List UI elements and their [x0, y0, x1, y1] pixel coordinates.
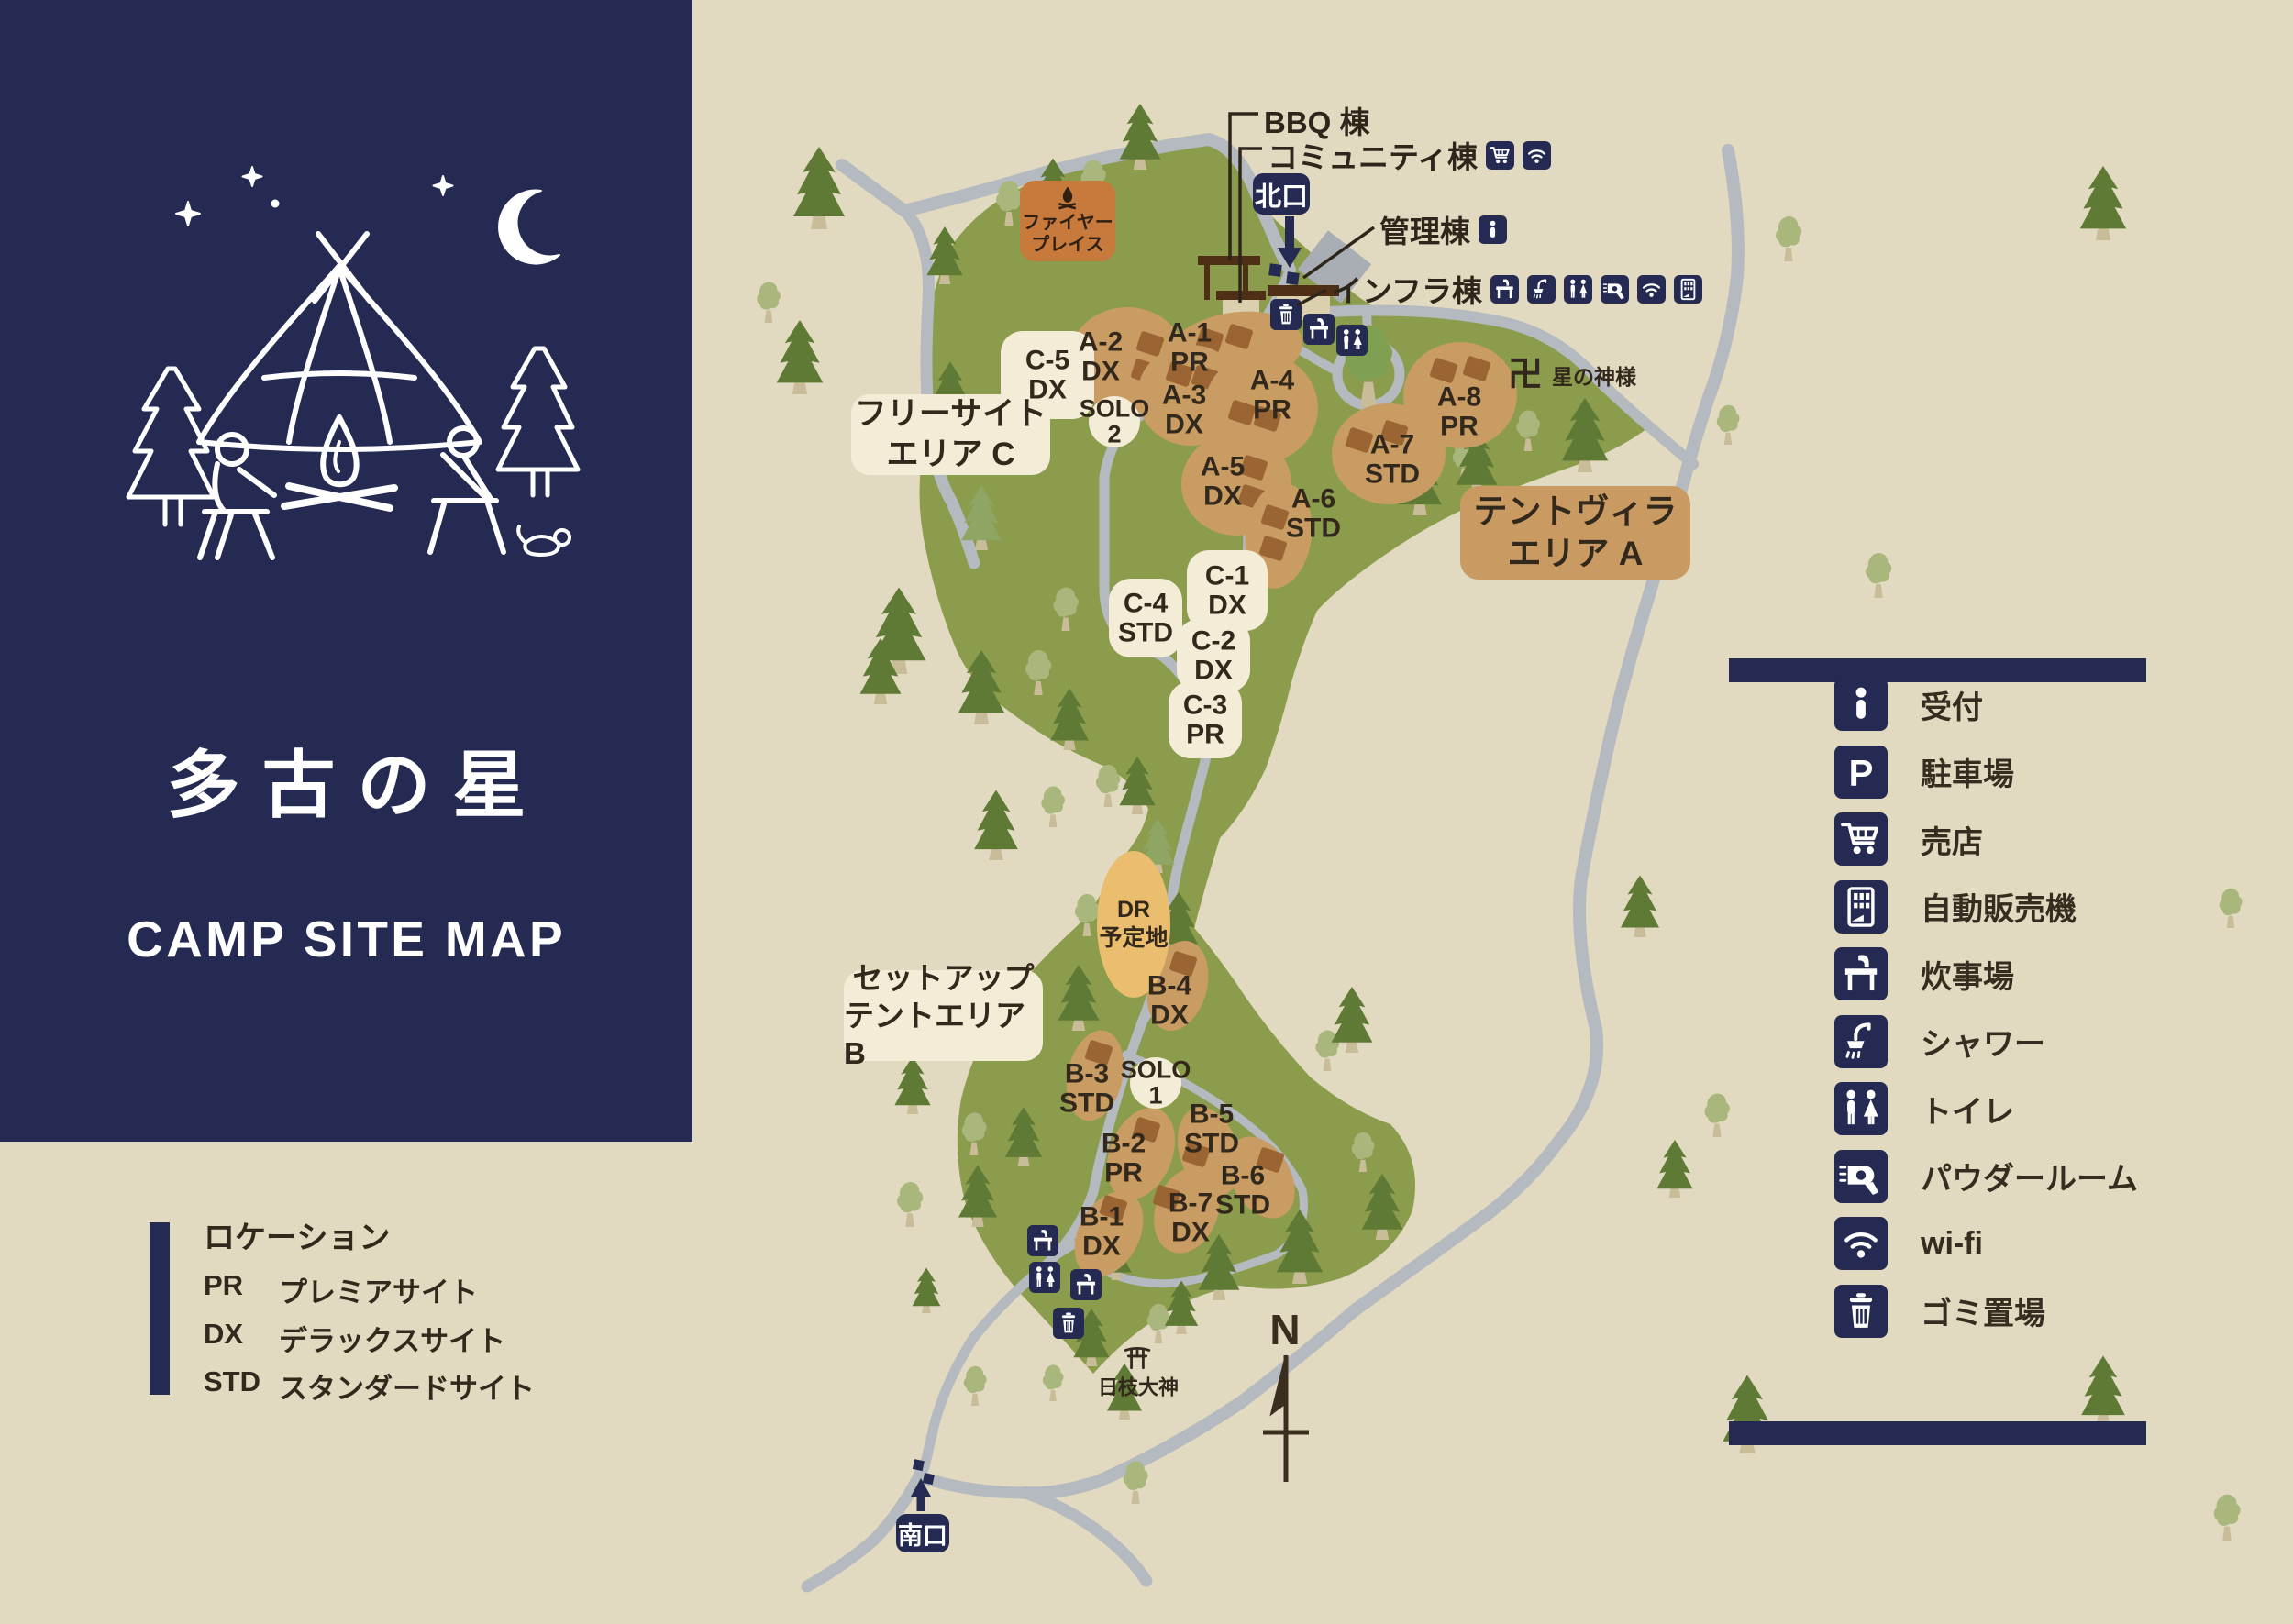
fireplace-area: ファイヤー プレイス: [1020, 181, 1115, 261]
wifi-icon: [1637, 275, 1666, 304]
sketch-campfire-logs: [284, 486, 394, 508]
site-label-A-4: A-4PR: [1250, 367, 1294, 425]
site-label-C-2: C-2DX: [1191, 627, 1235, 685]
deciduous-tree-icon: [1041, 786, 1065, 827]
sink-icon: [1303, 314, 1335, 345]
fireplace-line1: ファイヤー: [1022, 212, 1113, 234]
torii-icon: [1125, 1348, 1149, 1367]
sketch-tree-right: [498, 348, 578, 495]
deciduous-tree-icon: [1043, 1364, 1064, 1401]
moon-icon: [499, 191, 559, 264]
camp-site-map-poster: P: [0, 0, 2293, 1624]
deciduous-tree-icon: [1776, 216, 1801, 261]
facility-label: 自動販売機: [1921, 884, 2077, 929]
vending-icon: [1834, 880, 1888, 934]
deciduous-tree-icon: [1705, 1093, 1730, 1137]
sink-icon: [1027, 1225, 1058, 1256]
site-label-A-8: A-8PR: [1437, 383, 1481, 441]
parking-icon: [1834, 746, 1888, 799]
campfire-illustration: [78, 138, 610, 669]
site-label-B-4: B-4DX: [1147, 972, 1191, 1030]
site-label-B-7: B-7DX: [1169, 1189, 1213, 1247]
facility-row-vending: 自動販売機: [1834, 880, 2077, 934]
shop-icon: [1834, 812, 1888, 866]
site-label-A-2: A-2DX: [1079, 328, 1123, 386]
facility-label: 炊事場: [1921, 952, 2014, 997]
area-label-free-site-c: フリーサイト エリア C: [851, 394, 1050, 475]
dr-line2: 予定地: [1099, 924, 1168, 953]
toilet-icon: [1029, 1262, 1060, 1293]
deciduous-tree-icon: [1096, 765, 1120, 807]
site-label-B-5: B-5STD: [1184, 1100, 1239, 1158]
sink-icon: [1490, 275, 1519, 304]
sink-icon: [1070, 1269, 1102, 1300]
facility-label: シャワー: [1921, 1019, 2045, 1064]
conifer-tree-icon: [2080, 166, 2126, 240]
toilet-icon: [1834, 1082, 1888, 1135]
south-entrance-badge: 南口: [896, 1514, 949, 1552]
facility-label: 受付: [1921, 682, 1983, 727]
campfire-icon: [1054, 184, 1081, 212]
facility-row-sink: 炊事場: [1834, 947, 2014, 1000]
area-label-tent-villa-a: テントヴィラ エリア A: [1460, 486, 1690, 580]
location-legend-title: ロケーション: [204, 1212, 390, 1257]
site-label-C-4: C-4STD: [1118, 590, 1173, 647]
shop-icon: [1486, 141, 1514, 170]
deciduous-tree-icon: [1866, 553, 1891, 598]
manji-icon: 卍: [1508, 358, 1543, 392]
facility-row-info: 受付: [1834, 678, 1983, 731]
dryer-icon: [1601, 275, 1629, 304]
facility-label: 売店: [1921, 817, 1983, 862]
toilet-icon: [1564, 275, 1592, 304]
site-title: 多古の星: [0, 726, 692, 833]
conifer-tree-icon: [1621, 876, 1659, 938]
vending-icon: [1674, 275, 1702, 304]
shower-icon: [1834, 1015, 1888, 1068]
compass-north-label: N: [1269, 1308, 1300, 1352]
wifi-icon: [1834, 1217, 1888, 1270]
location-row-DX: DXデラックスサイト: [204, 1318, 505, 1359]
facility-label: ゴミ置場: [1921, 1288, 2045, 1333]
site-label-SOLO-1: SOLO1: [1121, 1057, 1191, 1110]
site-label-A-7: A-7STD: [1365, 431, 1420, 489]
brand-panel: 多古の星 CAMP SITE MAP: [0, 0, 692, 1142]
facility-row-wifi: wi-fi: [1834, 1217, 1983, 1270]
facility-label: パウダールーム: [1921, 1154, 2138, 1199]
callout-infra: インフラ棟: [1332, 267, 1702, 311]
deciduous-tree-icon: [757, 282, 781, 323]
deciduous-tree-icon: [964, 1366, 987, 1406]
site-label-A-1: A-1PR: [1168, 319, 1212, 377]
callout-community: コミュニティ棟: [1268, 133, 1551, 177]
trash-icon: [1053, 1308, 1084, 1339]
deciduous-tree-icon: [897, 1182, 923, 1227]
site-label-B-6: B-6STD: [1215, 1162, 1270, 1220]
sketch-dog-icon: [518, 526, 570, 555]
facility-row-dryer: パウダールーム: [1834, 1150, 2138, 1203]
site-label-C-3: C-3PR: [1183, 691, 1227, 749]
sink-icon: [1834, 947, 1888, 1000]
conifer-tree-icon: [1656, 1140, 1692, 1198]
site-label-C-5: C-5DX: [1025, 347, 1069, 404]
callout-label-infra: インフラ棟: [1332, 267, 1482, 311]
area-label-setup-tent-b: セットアップ テントエリア B: [844, 970, 1043, 1061]
site-label-B-1: B-1DX: [1080, 1203, 1124, 1261]
deciduous-tree-icon: [1124, 1461, 1148, 1504]
site-subtitle: CAMP SITE MAP: [0, 910, 692, 968]
conifer-tree-icon: [913, 1268, 941, 1314]
site-label-C-1: C-1DX: [1205, 562, 1249, 620]
location-row-STD: STDスタンダードサイト: [204, 1365, 535, 1407]
conifer-tree-icon: [777, 320, 823, 394]
legend-accent-bar: [150, 1222, 170, 1395]
toilet-icon: [1336, 325, 1368, 356]
site-label-A-5: A-5DX: [1201, 453, 1245, 511]
facility-row-shower: シャワー: [1834, 1015, 2045, 1068]
site-label-B-3: B-3STD: [1059, 1060, 1114, 1118]
facility-row-toilet: トイレ: [1834, 1082, 2014, 1135]
deciduous-tree-icon: [1717, 405, 1740, 445]
dr-line1: DR: [1117, 896, 1150, 924]
callout-label-admin: 管理棟: [1379, 207, 1470, 251]
facility-row-parking: 駐車場: [1834, 746, 2014, 799]
location-row-PR: PRプレミアサイト: [204, 1269, 478, 1310]
conifer-tree-icon: [793, 147, 845, 229]
deciduous-tree-icon: [2214, 1495, 2241, 1541]
conifer-tree-icon: [974, 790, 1018, 861]
conifer-tree-icon: [2081, 1356, 2125, 1427]
site-label-SOLO-2: SOLO2: [1080, 396, 1150, 448]
callout-admin: 管理棟: [1379, 207, 1507, 251]
facility-row-trash: ゴミ置場: [1834, 1285, 2045, 1338]
info-icon: [1834, 678, 1888, 731]
wifi-icon: [1523, 141, 1551, 170]
fireplace-line2: プレイス: [1031, 234, 1103, 256]
site-label-A-3: A-3DX: [1162, 381, 1206, 439]
facility-label: トイレ: [1921, 1087, 2014, 1132]
info-icon: [1479, 215, 1507, 244]
facility-label: wi-fi: [1921, 1226, 1983, 1262]
facility-row-shop: 売店: [1834, 812, 1983, 866]
callout-label-community: コミュニティ棟: [1268, 133, 1478, 177]
sketch-tree-left: [128, 369, 214, 525]
site-label-B-2: B-2PR: [1102, 1130, 1146, 1188]
shower-icon: [1527, 275, 1556, 304]
shrine-star-label: 卍 星の神様: [1508, 358, 1636, 392]
facility-legend-bottom-bar: [1729, 1421, 2146, 1445]
site-label-A-6: A-6STD: [1286, 485, 1341, 543]
dryer-icon: [1834, 1150, 1888, 1203]
north-entrance-badge: 北口: [1253, 173, 1310, 215]
facility-label: 駐車場: [1921, 749, 2014, 794]
trash-icon: [1834, 1285, 1888, 1338]
shrine-hie-label: 日枝大神: [1098, 1376, 1179, 1398]
deciduous-tree-icon: [2220, 889, 2243, 928]
